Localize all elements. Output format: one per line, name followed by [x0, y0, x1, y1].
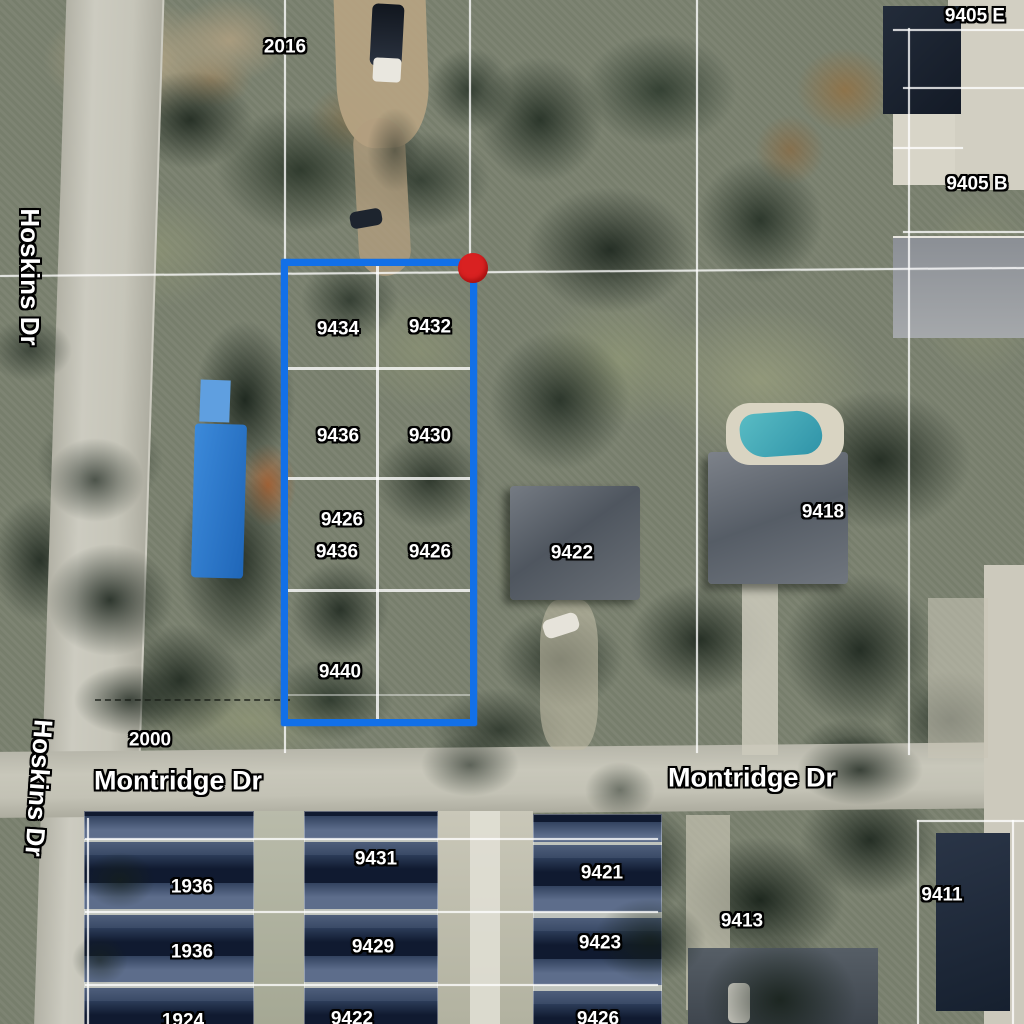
parcel-line [903, 231, 1024, 233]
blue-roof-gable [199, 379, 230, 422]
satellite-map[interactable]: 20169405 E9405 BHoskins DrHoskins Dr9434… [0, 0, 1024, 1024]
swimming-pool [739, 409, 824, 459]
house-9418-roof [708, 452, 848, 584]
parcel-line [85, 984, 658, 986]
house-9413-roof [688, 948, 878, 1024]
fence-line [95, 699, 290, 701]
parcel-line [893, 147, 963, 149]
townhouse-walkway [470, 811, 500, 1024]
parcel-line [469, 0, 471, 265]
building-9411-roof [936, 833, 1010, 1011]
white-van-9413 [728, 983, 750, 1023]
parcel-line [917, 820, 919, 1024]
red-dot-marker [458, 253, 488, 283]
parcel-line [903, 87, 1024, 89]
townhouse-block-center [304, 811, 438, 1024]
parcel-line [908, 28, 910, 755]
truck-cab [372, 57, 401, 82]
highlight-parcel-outline [281, 259, 477, 726]
parcel-line [917, 820, 1024, 822]
townhouse-block-east [533, 814, 662, 1024]
townhouse-block-west [84, 811, 254, 1024]
blue-roof-house [191, 423, 247, 578]
townhouse-alley-1 [252, 811, 304, 1024]
parcel-line [85, 838, 658, 840]
building-9405b-roof [893, 236, 1024, 338]
parcel-line [85, 911, 658, 913]
driveway-9418 [742, 583, 778, 755]
building-9405e-roof [883, 6, 961, 114]
parcel-line [1012, 820, 1014, 1024]
road-montridge-dr [0, 742, 1024, 818]
dirt-path [352, 117, 412, 278]
house-9422-roof [510, 486, 640, 600]
parcel-line [893, 29, 1024, 31]
parcel-line [87, 818, 89, 1024]
driveway-right-mid [928, 598, 988, 758]
parcel-line [696, 0, 698, 753]
